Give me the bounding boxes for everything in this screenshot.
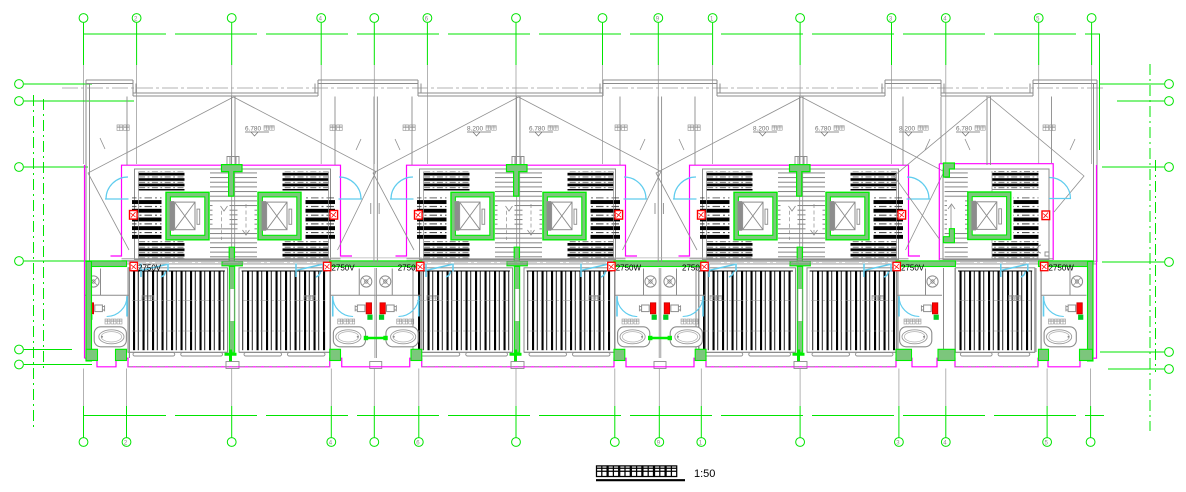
svg-text:2750V: 2750V	[331, 264, 355, 273]
svg-text:2750W: 2750W	[1049, 264, 1075, 273]
svg-text:2750V: 2750V	[901, 264, 925, 273]
svg-text:2750V: 2750V	[138, 264, 162, 273]
svg-text:6.780: 6.780	[245, 126, 261, 133]
svg-text:2750: 2750	[398, 264, 416, 273]
svg-text:8.200: 8.200	[467, 126, 483, 133]
svg-text:1:50: 1:50	[694, 468, 715, 480]
svg-text:6.780: 6.780	[956, 126, 972, 133]
svg-text:2750: 2750	[682, 264, 700, 273]
svg-text:6.780: 6.780	[815, 126, 831, 133]
svg-text:8.200: 8.200	[899, 126, 915, 133]
svg-text:2750W: 2750W	[616, 264, 642, 273]
svg-text:8.200: 8.200	[753, 126, 769, 133]
svg-text:6.780: 6.780	[529, 126, 545, 133]
